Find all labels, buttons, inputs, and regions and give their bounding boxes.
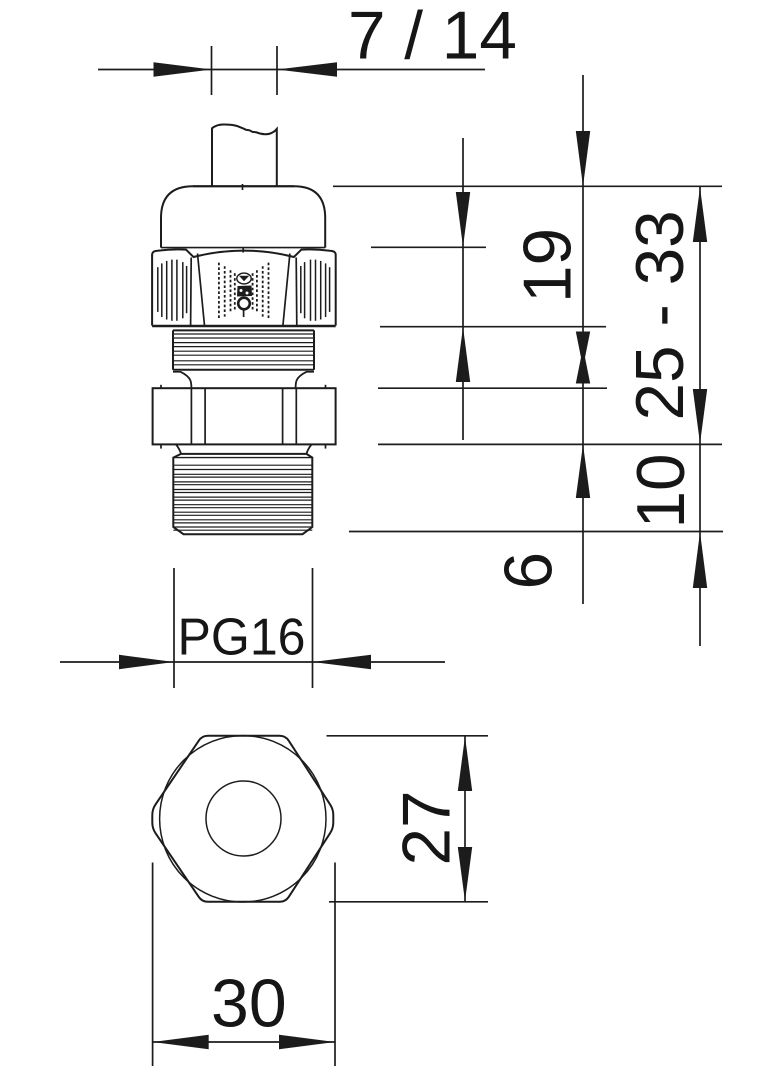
svg-text:19: 19: [511, 228, 586, 303]
svg-text:PG16: PG16: [178, 609, 306, 667]
svg-text:7 / 14: 7 / 14: [348, 0, 517, 74]
svg-text:27: 27: [390, 790, 465, 865]
svg-text:30: 30: [211, 966, 287, 1042]
svg-text:6: 6: [492, 552, 567, 590]
svg-text:10: 10: [624, 453, 699, 528]
svg-text:25 - 33: 25 - 33: [623, 210, 698, 420]
